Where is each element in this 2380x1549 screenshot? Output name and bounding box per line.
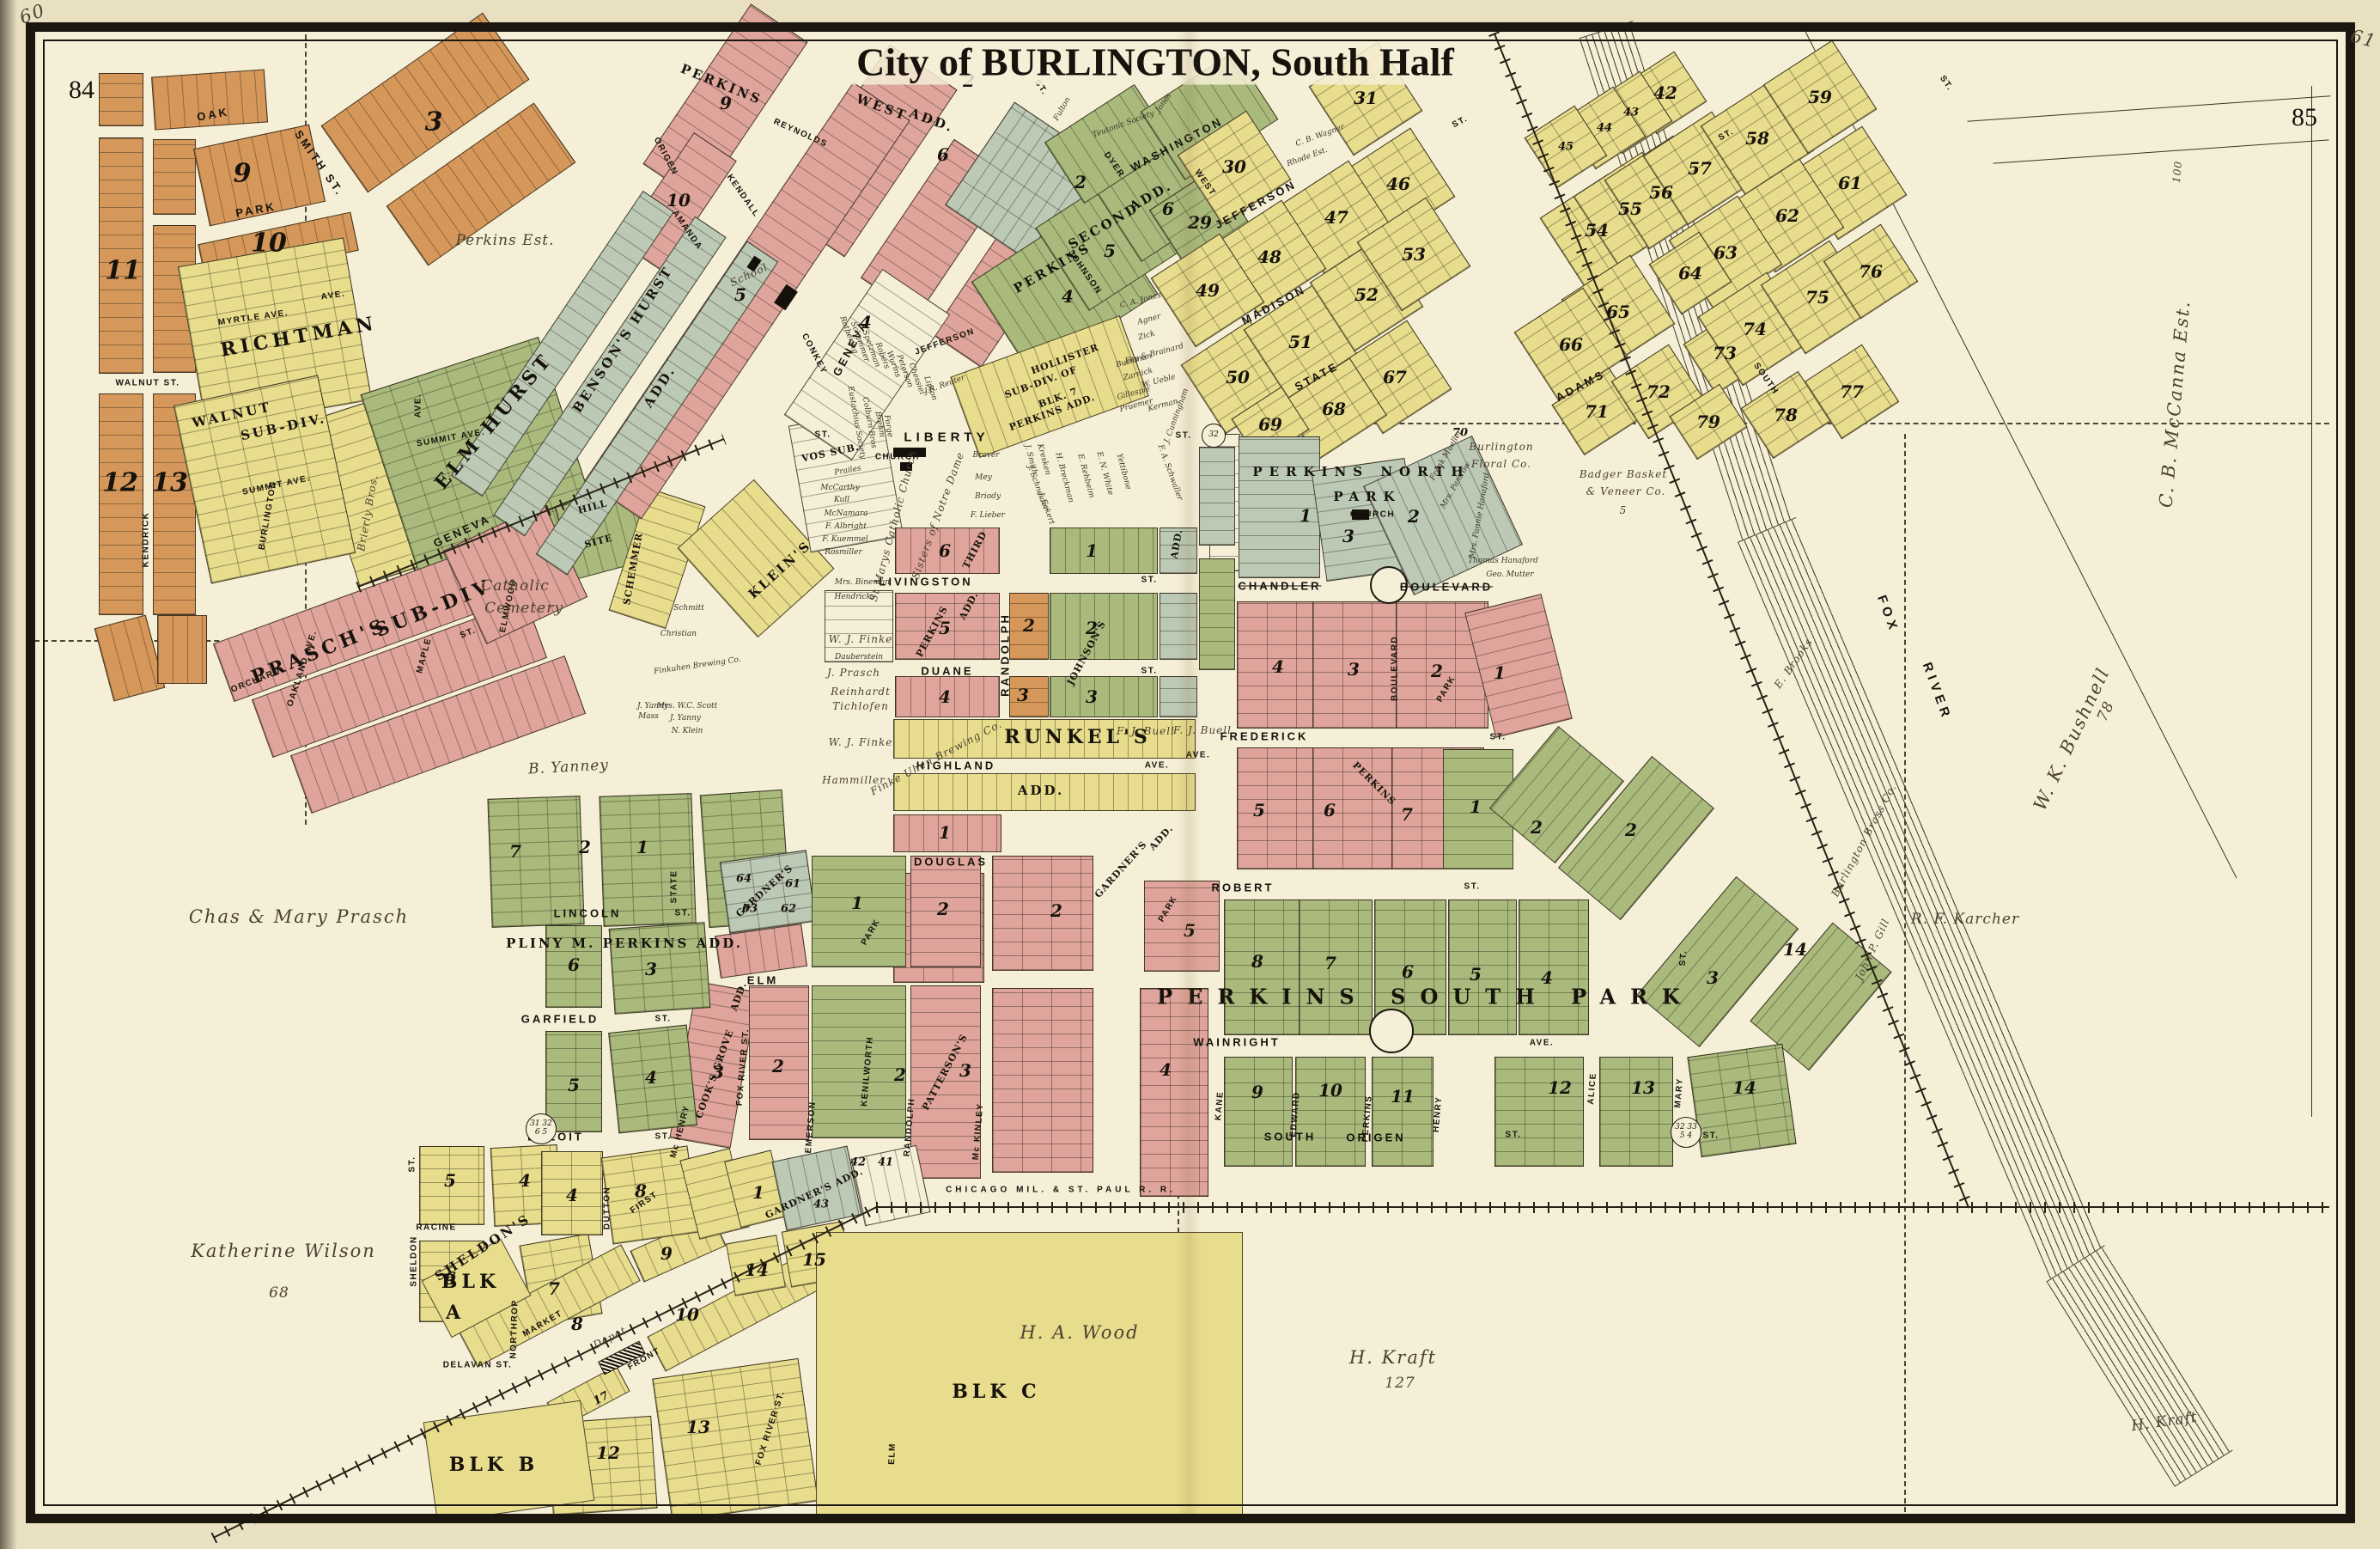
city-block: [992, 988, 1093, 1173]
owner-label: Rosmiller: [825, 548, 862, 557]
block-number: 77: [1840, 381, 1864, 402]
owner-label: R. F. Karcher: [1911, 911, 2019, 928]
church-label: CHURCH: [1350, 510, 1395, 520]
owner-label: Mey: [975, 473, 992, 482]
block-number: 1: [1494, 662, 1506, 683]
block-number: 3: [1348, 659, 1360, 680]
block-number: 62: [1775, 205, 1799, 226]
block-number: 52: [1354, 284, 1379, 305]
block-number: 51: [1288, 332, 1312, 352]
owner-label: J. Prasch: [827, 667, 880, 679]
city-block: [1224, 1057, 1293, 1167]
owner-label: Schmitt: [673, 604, 704, 613]
block-number: 1: [1086, 540, 1098, 561]
block-number: 55: [1618, 198, 1642, 219]
block-number: 78: [1774, 405, 1798, 425]
block-number: 5: [939, 618, 951, 638]
owner-label: N. Klein: [672, 727, 703, 735]
street-label: WAINRIGHT: [1193, 1036, 1280, 1049]
owner-label: Hammiller: [822, 774, 886, 786]
block-number: 65: [1606, 302, 1630, 322]
street-label: CHANDLER: [1239, 580, 1322, 593]
owner-label: Christian: [660, 630, 697, 638]
block-number: 5: [1253, 800, 1265, 820]
city-block: [99, 393, 143, 615]
owner-label: 68: [269, 1284, 289, 1302]
block-number: 2: [1408, 506, 1420, 527]
owner-label: 5: [1620, 504, 1628, 516]
city-block: [652, 1358, 819, 1522]
block-number: 4: [939, 686, 951, 707]
owner-label: Chas & Mary Prasch: [189, 906, 409, 927]
subdivision-label: BLK B: [449, 1454, 539, 1476]
block-number: 48: [1257, 247, 1281, 267]
block-number: 61: [1838, 173, 1862, 193]
block-number: 72: [1647, 381, 1671, 402]
owner-label: Katherine Wilson: [191, 1241, 376, 1261]
street-label: STATE: [670, 870, 679, 904]
block-number: 2: [1023, 615, 1035, 636]
block-number: 10: [667, 190, 691, 210]
street-label: BOULEVARD: [1400, 581, 1493, 594]
owner-label: Braver: [973, 451, 1000, 460]
block-number: 7: [548, 1278, 560, 1299]
street-label: LIBERTY: [904, 430, 989, 445]
city-block: [1494, 1057, 1584, 1167]
block-number: 46: [1386, 174, 1410, 194]
block-number: 42: [1653, 82, 1677, 103]
block-number: 9: [1251, 1082, 1263, 1102]
owner-label: 127: [1385, 1375, 1415, 1392]
city-block: [1372, 1057, 1433, 1167]
owner-label: Briody: [975, 492, 1001, 501]
block-number: 3: [1342, 526, 1354, 546]
section-corner-marker: 32: [1202, 424, 1226, 448]
block-number: 56: [1649, 182, 1673, 203]
block-number: 43: [813, 1198, 829, 1211]
block-number: 74: [1743, 319, 1767, 339]
block-number: 69: [1258, 414, 1282, 435]
owner-label: F. Lieber: [971, 511, 1005, 520]
marker-text: 5 4: [1680, 1132, 1692, 1141]
block-number: 13: [1631, 1077, 1655, 1098]
page-number-right: 85: [2292, 103, 2317, 132]
street-label: FREDERICK: [1220, 730, 1309, 743]
street-label: LINCOLN: [554, 907, 622, 920]
block-number: 64: [736, 873, 752, 886]
owner-label: Hendricks: [834, 593, 874, 601]
block-number: 66: [1559, 334, 1583, 355]
church-label: CHURCH: [875, 453, 920, 462]
wainright-circle: [1369, 1009, 1414, 1053]
subdivision-label: PERKINS SOUTH PARK: [1157, 985, 1695, 1009]
subdivision-label: A: [446, 1302, 465, 1324]
block-number: 4: [1541, 967, 1553, 988]
block-number: 9: [234, 159, 252, 189]
block-number: 76: [1859, 261, 1883, 282]
street-label: AVE.: [414, 393, 423, 418]
block-number: 11: [1391, 1086, 1415, 1107]
block-number: 5: [1470, 964, 1482, 985]
street-label: RANDOLPH: [999, 613, 1012, 697]
block-number: 1: [752, 1182, 764, 1203]
block-number: 8: [1251, 951, 1263, 972]
railroad-track: [876, 1202, 2329, 1213]
block-number: 14: [1783, 939, 1807, 960]
block-number: 8: [571, 1314, 583, 1334]
block-number: 4: [1160, 1059, 1172, 1080]
owner-label: W. J. Finke: [829, 633, 893, 645]
street-label: GARFIELD: [521, 1013, 599, 1026]
block-number: 14: [745, 1259, 769, 1280]
owner-label: H. A. Wood: [1020, 1322, 1139, 1343]
block-number: 3: [425, 107, 443, 137]
block-number: 3: [1017, 685, 1029, 705]
city-block: [1599, 1057, 1673, 1167]
owner-label: F. Albright: [825, 522, 867, 531]
block-number: 10: [675, 1304, 699, 1325]
block-number: 2: [937, 899, 949, 919]
binder-punch-mark: [1404, 1540, 1427, 1549]
marker-text: 32: [1208, 431, 1218, 440]
owner-label: Dauberstein: [835, 653, 883, 662]
page-number-left: 84: [69, 76, 94, 105]
block-number: 73: [1713, 343, 1737, 363]
block-number: 31: [1354, 88, 1378, 108]
block-number: 9: [660, 1243, 673, 1264]
block-number: 3: [712, 1062, 724, 1082]
owner-label: Badger Basket: [1580, 468, 1667, 480]
street-label: ORIGEN: [1346, 1131, 1405, 1144]
block-number: 10: [251, 229, 287, 259]
block-number: 42: [850, 1156, 866, 1169]
block-number: 15: [802, 1249, 826, 1270]
boundary-line: [2311, 86, 2312, 1117]
street-label: ST.: [1464, 882, 1481, 892]
city-block: [1448, 900, 1517, 1035]
owner-label: F. J. Buell: [1117, 725, 1175, 737]
block-number: 3: [1086, 686, 1098, 707]
block-number: 2: [1431, 661, 1443, 681]
block-number: 47: [1324, 207, 1348, 228]
city-block: [812, 985, 906, 1138]
block-number: 2: [894, 1064, 906, 1085]
block-number: 1: [939, 822, 951, 843]
block-number: 3: [959, 1060, 971, 1081]
block-number: 7: [509, 841, 521, 862]
block-number: 61: [785, 878, 800, 891]
block-number: 54: [1585, 220, 1609, 241]
block-number: 5: [444, 1170, 456, 1191]
block-number: 2: [1531, 817, 1543, 838]
city-block: [99, 73, 143, 126]
street-label: WALNUT ST.: [116, 379, 180, 388]
street-label: ST.: [1506, 1131, 1522, 1140]
street-label: DUTTON: [603, 1186, 612, 1229]
block-number: 68: [1322, 399, 1346, 419]
street-label: AVE.: [1145, 761, 1170, 771]
page-fold-crease: [1177, 22, 1201, 1523]
street-label: ELM: [887, 1442, 898, 1465]
owner-label: Perkins Est.: [455, 232, 554, 249]
block-number: 11: [105, 256, 141, 286]
block-number: 30: [1222, 156, 1246, 177]
block-number: 50: [1226, 367, 1250, 387]
street-label: RACINE: [416, 1223, 456, 1233]
city-block: [1199, 447, 1235, 546]
owner-label: H. Kraft: [1349, 1347, 1437, 1368]
street-label: DUANE: [921, 665, 973, 678]
street-label: ST.: [815, 430, 831, 440]
owner-label: Thomas Hanaford: [1468, 557, 1538, 565]
block-number: 6: [1162, 198, 1174, 219]
block-number: 9: [720, 93, 732, 113]
block-number: 6: [937, 144, 949, 165]
city-block: [157, 615, 207, 684]
block-number: 2: [1086, 618, 1098, 638]
block-number: 6: [939, 540, 951, 561]
street-label: ELM: [747, 974, 778, 987]
street-label: DOUGLAS: [914, 856, 988, 869]
block-number: 53: [1402, 244, 1426, 265]
block-number: 3: [645, 959, 657, 979]
owner-label: Reinhardt: [831, 686, 891, 698]
block-number: 57: [1688, 158, 1712, 179]
block-number: 63: [742, 903, 758, 916]
block-number: 12: [102, 468, 138, 498]
block-number: 6: [1324, 800, 1336, 820]
owner-label: Mrs. W.C. Scott: [657, 702, 718, 710]
block-number: 2: [772, 1056, 784, 1076]
owner-label: 100: [2170, 160, 2184, 183]
city-block: [1050, 528, 1158, 574]
block-number: 2: [1050, 900, 1062, 921]
owner-label: Mass: [638, 712, 659, 721]
street-label: ST.: [655, 1015, 672, 1024]
owner-label: Mrs. Bineman: [835, 578, 890, 587]
street-label: KENDRICK: [142, 512, 151, 568]
city-block: [153, 139, 196, 215]
block-number: 4: [519, 1170, 531, 1191]
street-label: SHELDON: [410, 1235, 419, 1286]
block-number: 8: [635, 1180, 647, 1201]
owner-label: Burlington: [1469, 441, 1533, 453]
block-number: 59: [1808, 87, 1832, 107]
block-number: 5: [1104, 241, 1116, 261]
section-corner-marker: 31 32 6 5: [526, 1113, 557, 1144]
block-number: 41: [878, 1156, 893, 1169]
block-number: 7: [1401, 804, 1413, 825]
block-number: 12: [1548, 1077, 1572, 1098]
block-number: 12: [596, 1442, 620, 1463]
street-label: AVE.: [1530, 1039, 1555, 1048]
owner-label: W. J. Finke: [829, 736, 893, 748]
street-label: ST.: [655, 1132, 672, 1142]
block-number: 7: [1324, 953, 1336, 973]
city-block: [992, 856, 1093, 971]
owner-label: J. Yanny: [670, 714, 701, 723]
street-label: ST.: [1141, 576, 1158, 585]
owner-label: Tichlofen: [832, 700, 889, 712]
street-label: LIVINGSTON: [879, 576, 972, 588]
street-label: ROBERT: [1212, 881, 1275, 894]
block-number: 44: [1597, 122, 1612, 135]
street-label: DELAVAN ST.: [443, 1361, 513, 1370]
owner-label: McNamara: [824, 509, 867, 518]
block-number: 6: [444, 1268, 456, 1289]
block-number: 6: [568, 954, 580, 975]
scan-edge-shadow: [0, 0, 17, 1549]
block-number: 1: [1300, 505, 1312, 526]
block-number: 4: [1062, 286, 1074, 307]
owner-label: Floral Co.: [1471, 458, 1531, 470]
street-label: ST.: [408, 1156, 417, 1173]
city-block: [1519, 900, 1589, 1035]
block-number: 62: [781, 903, 796, 916]
block-number: 79: [1696, 412, 1720, 432]
block-number: 10: [1318, 1080, 1342, 1101]
block-number: 6: [1402, 961, 1414, 982]
owner-label: Cemetery: [484, 600, 563, 617]
block-number: 1: [851, 893, 863, 913]
block-number: 63: [1713, 242, 1738, 263]
atlas-page: FOX RIVER CHICAGO MIL. & ST. PAUL R. R.: [0, 0, 2380, 1549]
subdivision-label: PARK: [1333, 489, 1401, 504]
block-number: 3: [1707, 967, 1719, 988]
owner-label: Kull: [834, 496, 849, 504]
subdivision-label: PLINY M. PERKINS ADD.: [506, 936, 743, 951]
street-label: SOUTH: [1264, 1131, 1317, 1143]
section-corner-marker: 32 33 5 4: [1671, 1117, 1701, 1148]
city-block: [1295, 1057, 1366, 1167]
block-number: 2: [579, 837, 591, 857]
owner-label: F. Kuemmel: [822, 535, 868, 544]
owner-label: & Veneer Co.: [1586, 485, 1666, 497]
block-number: 5: [568, 1075, 580, 1095]
section-line: [1904, 434, 1906, 1512]
block-number: 45: [1558, 141, 1573, 154]
block-number: 2: [1625, 820, 1637, 840]
marker-text: 6 5: [535, 1129, 547, 1137]
subdivision-label: ADD.: [1018, 783, 1064, 798]
block-number: 13: [686, 1417, 710, 1437]
block-number: 14: [1732, 1077, 1756, 1098]
block-number: 5: [734, 284, 746, 305]
owner-label: McCarthy: [820, 484, 859, 492]
map-title: City of BURLINGTON, South Half: [844, 40, 1466, 85]
block-number: 4: [1272, 656, 1284, 677]
street-label: ST.: [1490, 733, 1507, 742]
block-number: 13: [152, 468, 188, 498]
railroad-label: CHICAGO MIL. & ST. PAUL R. R.: [946, 1186, 1176, 1195]
street-label: ST.: [675, 909, 691, 918]
street-label: BOULEVARD: [1391, 636, 1400, 701]
block-number: 64: [1678, 263, 1702, 284]
owner-label: Geo. Mutter: [1486, 570, 1533, 579]
block-number: 67: [1383, 367, 1407, 387]
binder-punch-mark: [1184, 1538, 1206, 1549]
block-number: 4: [566, 1185, 578, 1205]
block-number: 4: [645, 1067, 657, 1088]
block-number: 58: [1745, 128, 1769, 149]
subdivision-label: BLK C: [952, 1381, 1040, 1403]
city-block: [1199, 558, 1235, 670]
street-label: ST.: [1141, 667, 1158, 676]
street-label: ST.: [1678, 949, 1689, 967]
block-number: 1: [1470, 796, 1482, 817]
street-label: ST.: [1703, 1131, 1720, 1141]
owner-label: Catholic: [481, 577, 550, 595]
block-number: 2: [1074, 172, 1087, 192]
block-number: 75: [1805, 287, 1829, 308]
block-number: 1: [636, 837, 648, 857]
block-number: 43: [1623, 107, 1639, 119]
block-number: 71: [1585, 401, 1609, 422]
